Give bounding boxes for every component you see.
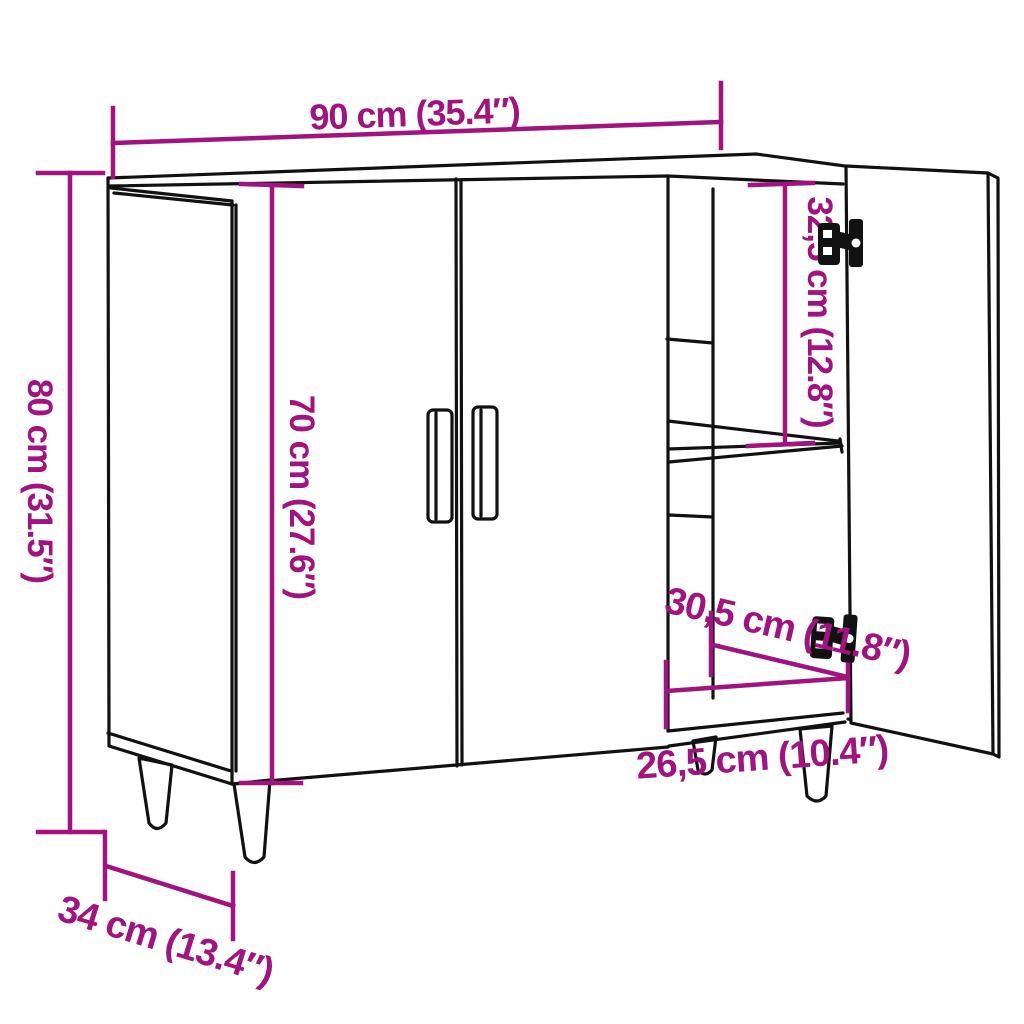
door-height-label: 70 cm (27.6″) — [282, 395, 321, 599]
top-compartment-tick-bottom — [748, 443, 813, 446]
left-door-handle — [428, 410, 452, 522]
door-gap-right-line — [461, 180, 462, 765]
top-hinge-slot-2 — [823, 247, 832, 255]
left-back-edge — [108, 178, 109, 745]
cabinet-top-front-edge — [110, 176, 668, 186]
cabinet-bottom-front-edge — [232, 747, 668, 784]
front-left-leg — [139, 758, 172, 829]
height-label: 80 cm (31.5″) — [20, 379, 59, 583]
shelf-end-cap — [840, 439, 842, 452]
width-label: 90 cm (35.4″) — [309, 89, 521, 137]
depth-label: 34 cm (13.4″) — [53, 888, 278, 993]
bottom-width-dimension-line — [667, 678, 848, 691]
diagram-canvas: 32,5 cm (12.8″) 90 cm (35.4″) 80 cm (31.… — [0, 0, 1024, 1024]
depth-dimension-line — [106, 866, 233, 906]
bottom-width-label: 26,5 cm (10.4″) — [635, 728, 890, 788]
door-gap-left-line — [456, 179, 457, 766]
top-hinge-hole — [852, 239, 861, 248]
left-middle-leg — [234, 780, 270, 863]
top-hinge-slot-1 — [823, 230, 832, 238]
middle-door-handle — [473, 407, 497, 519]
top-hinge-icon — [818, 219, 863, 267]
cabinet-top-back-edge — [108, 154, 845, 178]
interior-connector-upper — [667, 339, 713, 343]
top-compartment-tick-top — [750, 183, 813, 185]
furniture-dimension-diagram: 32,5 cm (12.8″) 90 cm (35.4″) 80 cm (31.… — [0, 0, 1024, 1024]
door-height-tick-top — [241, 184, 302, 186]
interior-connector-lower — [669, 515, 713, 517]
